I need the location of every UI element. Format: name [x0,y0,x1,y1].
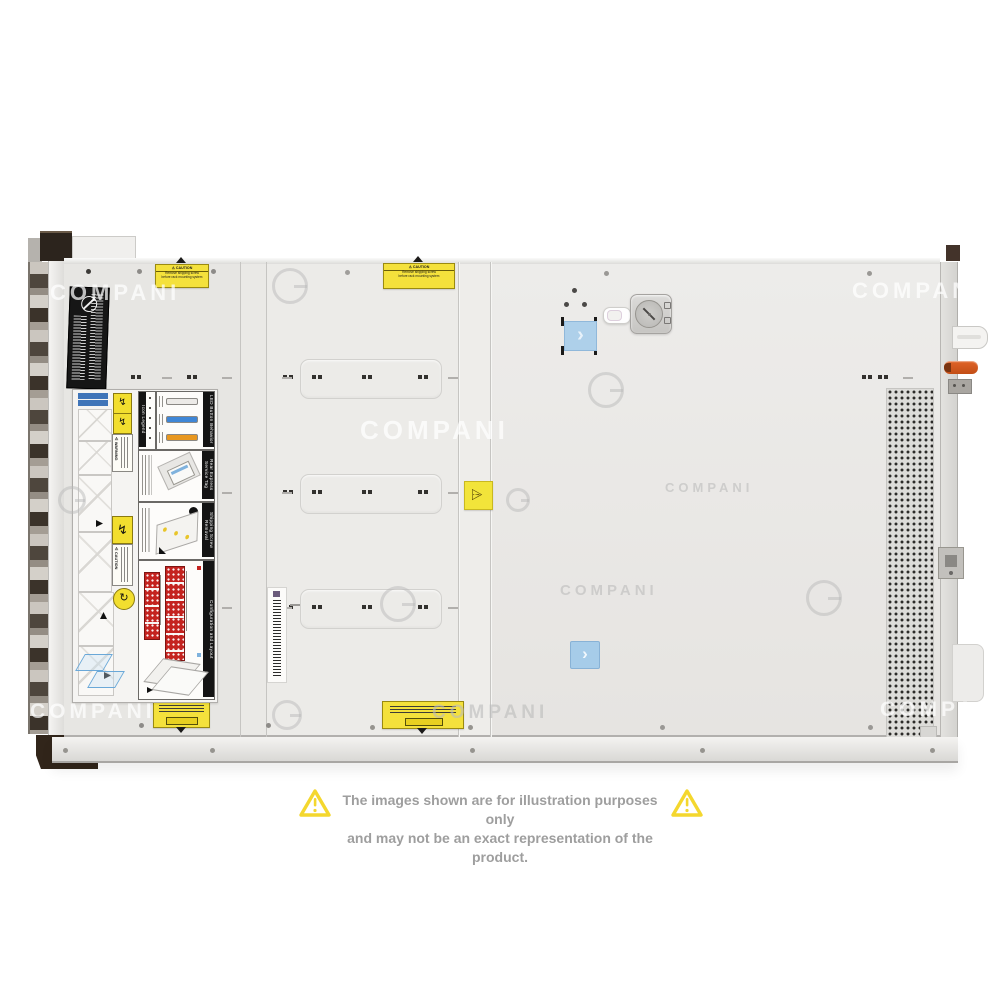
recessed-panel-2 [300,474,442,514]
warning-triangle-icon [670,788,704,819]
section-rear-express-service-tag: Rear Express Service Tag [138,450,215,502]
seam-highlight-3 [459,262,460,737]
pinch-hazard-icon-1: ↯ [113,393,132,414]
barcode-bars [273,600,281,676]
barcode-pointer-dash [290,604,300,606]
barcode-color-square [273,591,280,597]
led-bar-white [166,398,198,405]
shipping-screw-text [142,508,151,552]
cover-latch-slider [603,307,631,324]
lock-dial-circle [635,300,663,328]
service-blue-header-1 [78,393,108,399]
chassis-panel-cover [490,262,940,737]
watermark-logo [272,700,302,730]
section-shipping-screw-header: Shipping Screw Removal [202,503,214,557]
cover-lock-dial [630,294,672,334]
regulatory-label-text-lines-2 [89,294,104,380]
right-foot-tab [952,644,984,702]
section-shipping-screw-removal: Shipping Screw Removal [138,502,215,560]
watermark-logo [588,372,624,408]
watermark-text: COMPANI [432,702,548,724]
recessed-panel-1 [300,359,442,399]
chassis-panel-narrow [240,262,266,737]
section-configuration-and-layout: Configuration and Layout [138,560,215,700]
watermark-logo [380,586,416,622]
timer-hazard-icon: ↻ [113,588,135,610]
drive-bay-grid-2 [165,566,185,661]
legend-red-square [197,566,201,570]
right-connector-inner [945,555,957,567]
lock-dial-center [648,313,651,316]
caution-label-top-2: ⚠ CAUTION Remove shipping screw before r… [383,263,455,289]
service-diagram-4 [78,532,112,592]
watermark-text: COMPANI [880,698,1000,722]
recessed-panel-3 [300,589,442,629]
orange-lever-tip [944,363,951,372]
legend-blue-square [197,653,201,657]
product-photo: ⚠ CAUTION Remove shipping screw before r… [0,0,1000,1000]
lock-glyph-unlocked [664,317,671,324]
watermark-logo [806,580,842,616]
cover-release-button-top: › [564,321,597,351]
caution-bottom-box [166,717,198,725]
front-corner-block-top [40,231,72,261]
led-bar-orange [166,434,198,441]
watermark-logo [506,488,530,512]
arrow-marker-down-1 [176,727,186,733]
right-handle [952,326,988,349]
shipping-screw-dots [163,527,167,532]
shipping-screw-diagram [156,511,199,554]
caution-strip-title: ⚠ CAUTION [114,546,119,569]
config-caption-1 [160,575,163,625]
vent-grid [886,388,934,739]
warning-strip-text [121,437,130,468]
watermark-logo [58,486,86,514]
disclaimer-line1: The images shown are for illustration pu… [330,791,670,829]
config-caption-2 [186,571,189,631]
watermark-text: COMPANI [852,278,982,304]
seam-warning-sticker: ⚠ [464,481,493,510]
service-blue-header-2 [78,400,108,406]
drive-bay-grid-1 [144,572,160,640]
bottom-rail [52,737,958,763]
marks-squares-row-1-cover [862,375,866,379]
watermark-text: COMPANI [50,280,180,306]
section-icon-legend: Icon Legend [138,391,156,450]
cover-release-button-bottom: › [570,641,600,669]
right-metal-bracket [948,379,972,394]
cover-latch-slider-tab [607,310,622,321]
service-tag-bullets [142,455,152,495]
right-handle-notch [957,335,981,339]
arrow-marker-up-1 [176,257,186,263]
marks-squares-row-1 [131,375,135,379]
caution-strip-text [121,547,130,582]
pinch-hazard-icon-2: ↯ [113,413,132,434]
icon-legend-glyphs [149,397,151,399]
watermark-logo [272,268,308,304]
orange-lever [944,361,978,374]
barcode-label [267,587,287,683]
screw-row-top [86,269,91,274]
disclaimer-line2: and may not be an exact representation o… [330,829,670,867]
section-service-tag-header: Rear Express Service Tag [202,451,214,499]
watermark-text: COMPANI [665,480,753,495]
regulatory-label-text-lines-1 [72,315,87,379]
caution-strip: ⚠ CAUTION [112,544,133,586]
seam-warning-triangle-icon: ⚠ [468,488,485,501]
chevron-right-icon: › [577,324,584,346]
service-diagram-2 [78,441,112,475]
right-connector-dot [949,571,953,575]
led-row1-text [159,396,164,407]
watermark-text: COMPANI [30,700,156,724]
led-bar-blue [166,416,198,423]
cover-guide-dots [572,288,577,293]
caution-label-bottom-1 [153,700,210,728]
seam-line-1 [240,262,241,737]
screw-row-rail [63,748,68,753]
service-diagram-1 [78,409,112,441]
right-metal-bracket-dots [953,384,956,387]
arrow-marker-up-2 [413,256,423,262]
warning-strip-title: ⚠ WARNING [114,436,119,460]
watermark-text: COMPANI [560,582,658,599]
led-row3-text [159,432,164,443]
led-row2-text [159,414,164,425]
watermark-text: COMPANI [360,415,509,446]
warning-triangle-icon [298,788,332,819]
disclaimer-text: The images shown are for illustration pu… [330,791,670,867]
caution-line2: before rack mounting system [384,275,454,279]
service-diagram-5 [78,592,114,646]
warning-strip: ⚠ WARNING [112,434,133,472]
caution-bottom-text-lines [159,705,204,714]
section-icon-legend-header: Icon Legend [139,392,146,447]
lock-glyph-locked [664,302,671,309]
right-connector [938,547,964,579]
section-led-header: LED Button Behavior [203,392,214,447]
arrow-marker-down-2 [417,728,427,734]
right-top-tab [946,245,960,261]
chevron-right-icon: › [582,644,588,663]
pinch-hazard-icon-3: ↯ [112,516,133,544]
section-led-button-behavior: LED Button Behavior [156,391,215,450]
